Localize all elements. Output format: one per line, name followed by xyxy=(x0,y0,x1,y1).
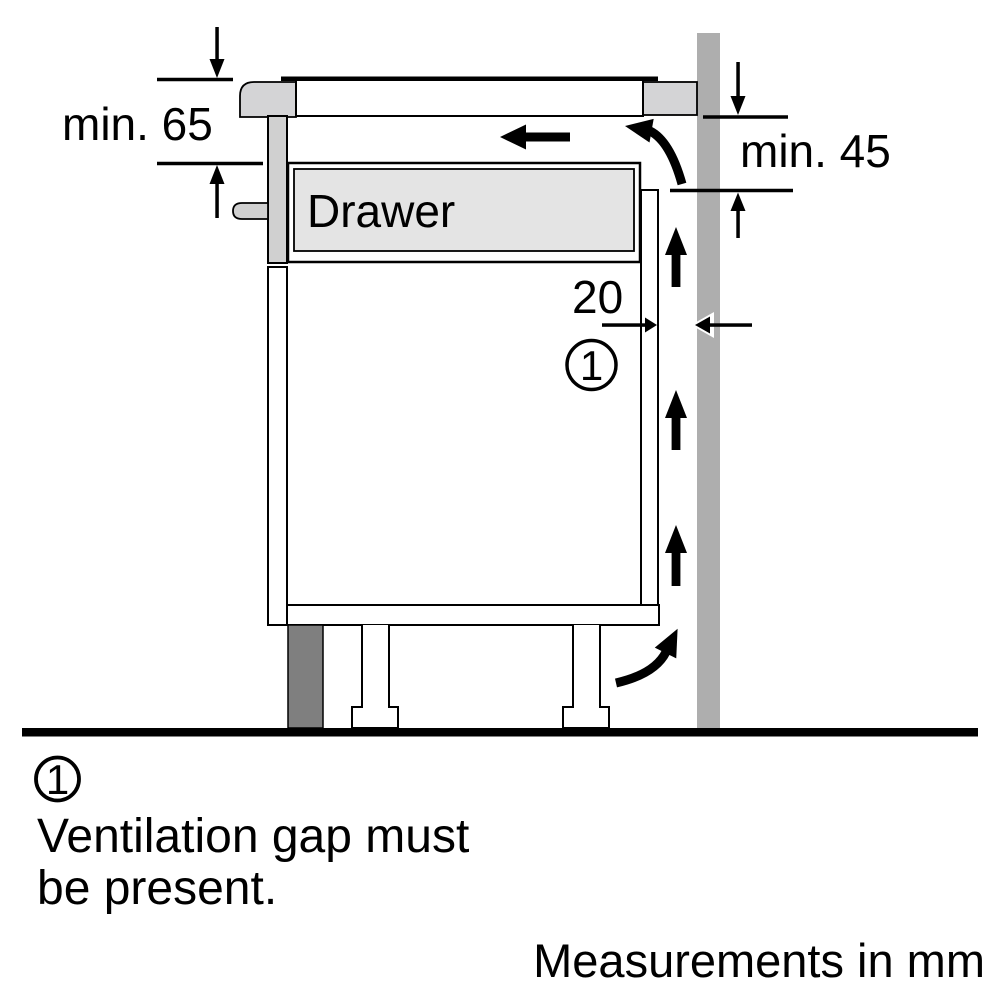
airflow-arrow-up-1 xyxy=(665,227,687,287)
drawer-label: Drawer xyxy=(307,185,455,237)
dim-arrow-up-left xyxy=(210,165,225,218)
legend-text-line2: be present. xyxy=(37,862,277,915)
dimension-label-min45: min. 45 xyxy=(740,125,891,177)
cabinet-front-rail xyxy=(268,116,287,263)
airflow-arrow-curved-bottom xyxy=(616,623,688,683)
hob-left-trim xyxy=(240,82,296,117)
wall xyxy=(697,33,720,728)
legend-marker-number: 1 xyxy=(46,756,69,803)
hob-right-trim xyxy=(643,82,697,115)
dim-arrow-down-right xyxy=(731,62,746,115)
hob-top-edge xyxy=(281,77,658,82)
legend-text-line1: Ventilation gap must xyxy=(37,810,469,863)
cabinet-bottom xyxy=(287,605,659,625)
cabinet-rear-panel xyxy=(641,190,658,605)
airflow-arrow-left xyxy=(500,125,570,150)
airflow-arrow-up-2 xyxy=(665,390,687,450)
hob-glass xyxy=(296,79,643,116)
plinth xyxy=(288,625,323,728)
cabinet-left-panel xyxy=(268,267,287,625)
dimension-label-gap20: 20 xyxy=(572,271,623,323)
installation-diagram: Drawer xyxy=(0,0,1000,1000)
drawer-handle xyxy=(233,203,268,219)
dim-arrow-up-right xyxy=(731,193,746,239)
dimension-label-min65: min. 65 xyxy=(62,98,213,150)
ground-line xyxy=(22,728,978,737)
dim-arrow-down-left xyxy=(210,27,225,78)
cabinet-leg-front xyxy=(352,625,398,728)
airflow-arrow-up-3 xyxy=(665,525,687,586)
callout-number: 1 xyxy=(580,342,603,389)
cabinet-leg-rear xyxy=(563,625,609,728)
footer-note: Measurements in mm xyxy=(533,934,985,987)
